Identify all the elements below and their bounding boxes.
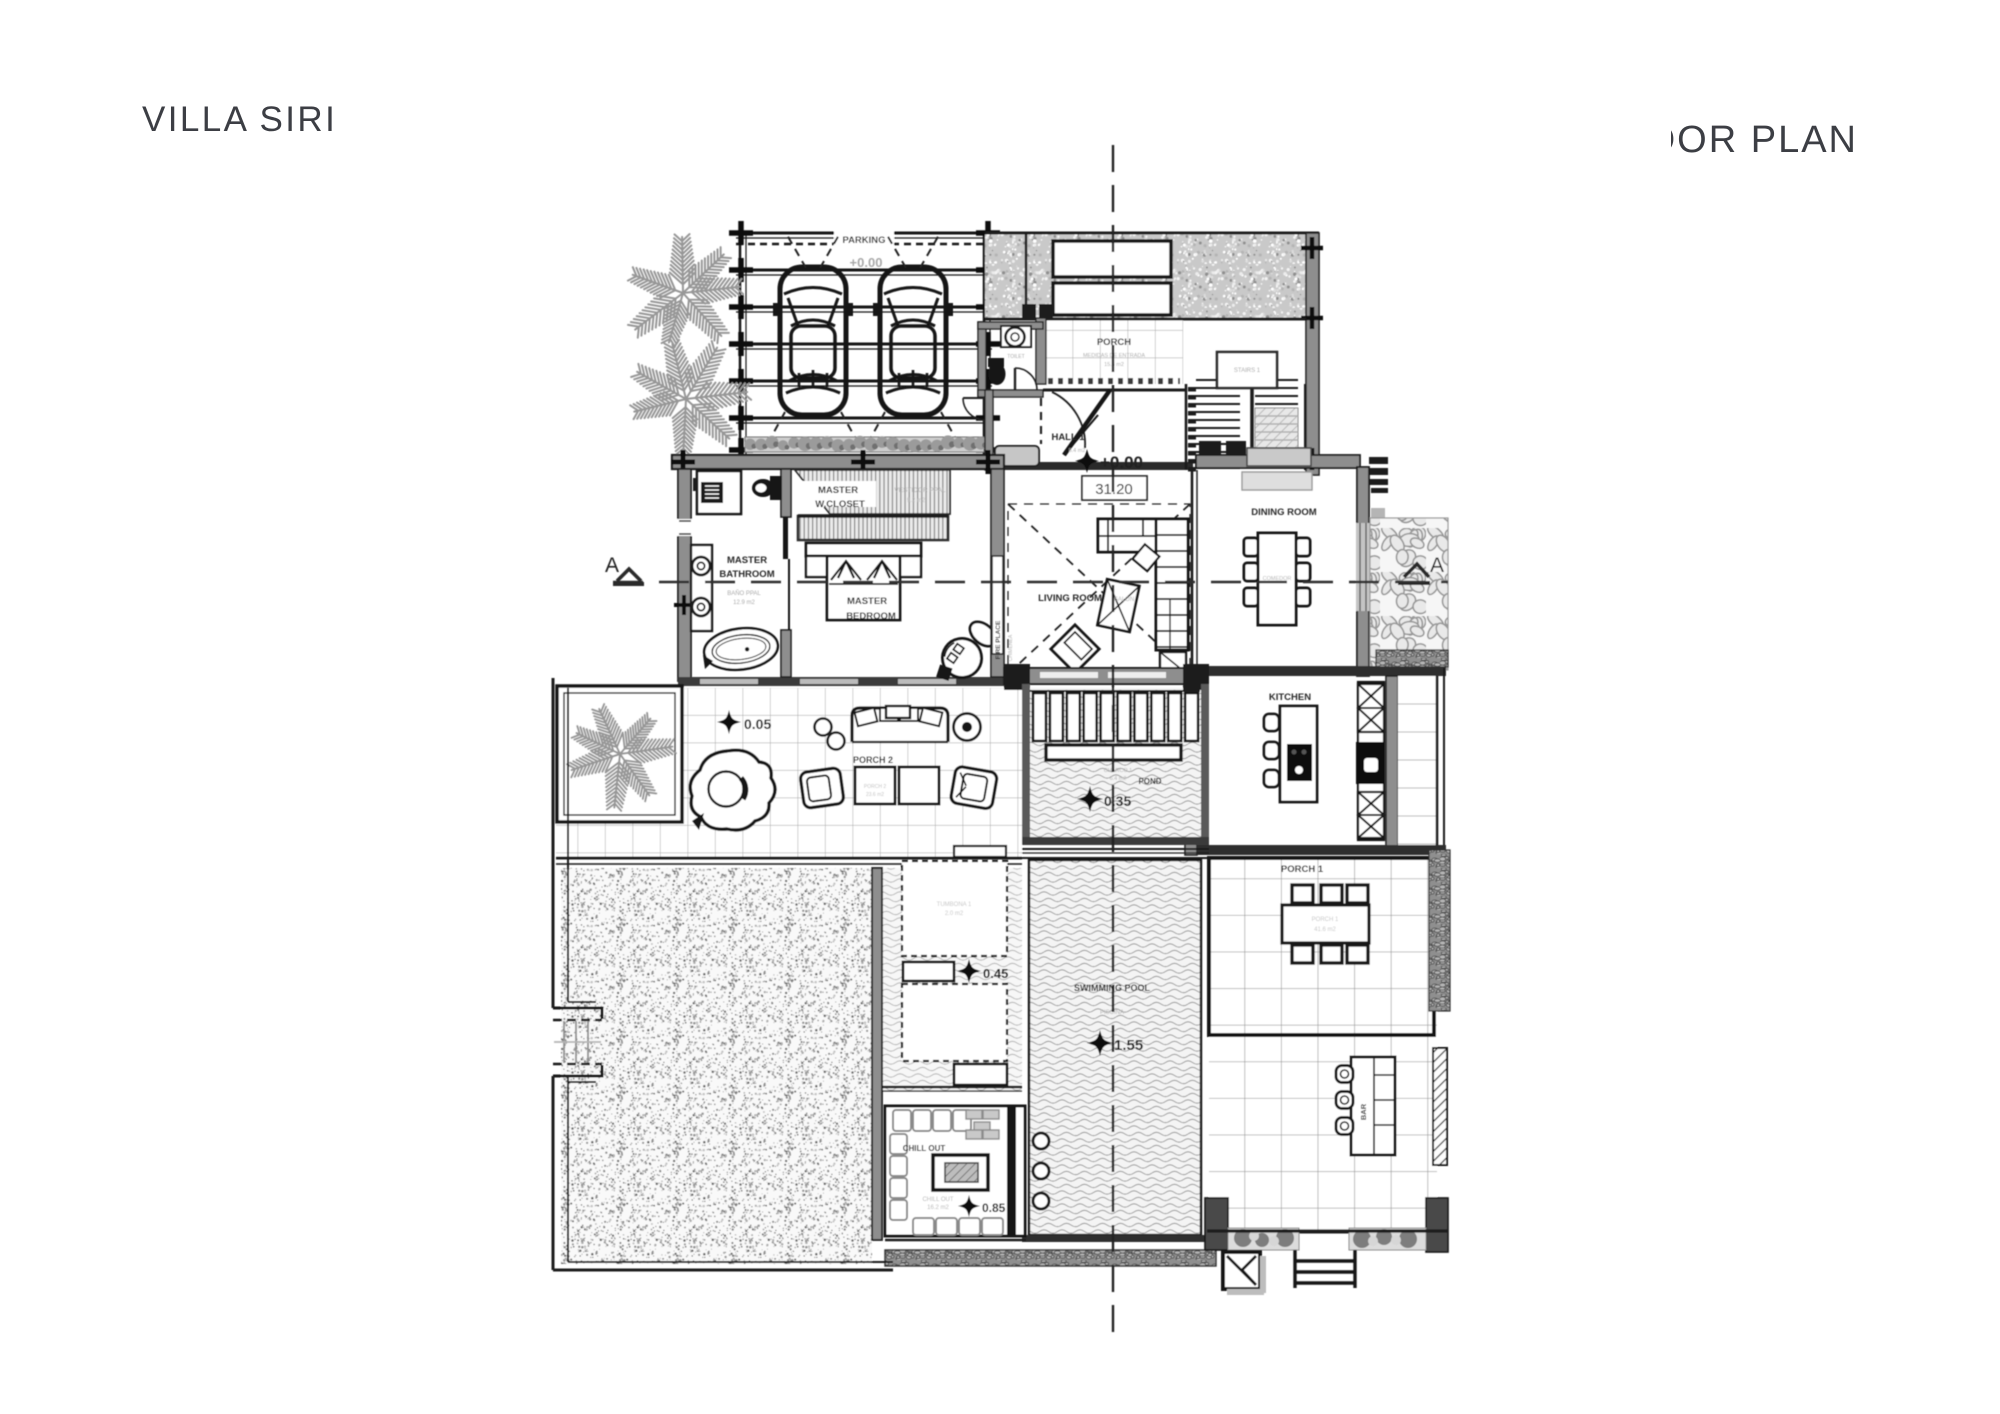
svg-text:DINING ROOM: DINING ROOM: [1251, 507, 1317, 518]
svg-text:TUMBONA 1: TUMBONA 1: [937, 902, 972, 908]
svg-text:TOILET: TOILET: [1007, 354, 1024, 360]
svg-text:12.9 m2: 12.9 m2: [733, 600, 755, 606]
svg-text:STAIRS 1: STAIRS 1: [1234, 368, 1261, 374]
svg-text:VESTIDOR PPAL: VESTIDOR PPAL: [894, 487, 946, 494]
svg-text:PORCH 2: PORCH 2: [864, 784, 886, 790]
svg-text:0.85: 0.85: [982, 1201, 1006, 1215]
svg-text:16.2 m2: 16.2 m2: [927, 1205, 949, 1211]
svg-text:41.6 m2: 41.6 m2: [1314, 927, 1336, 933]
svg-text:+0.00: +0.00: [850, 255, 883, 270]
svg-text:2.0 m2: 2.0 m2: [945, 911, 964, 917]
svg-text:FLOOR PLAN: FLOOR PLAN: [1597, 119, 1858, 161]
svg-text:MASTER: MASTER: [847, 596, 887, 607]
svg-text:POND: POND: [1138, 777, 1161, 786]
svg-text:W.CLOSET: W.CLOSET: [815, 499, 865, 510]
svg-text:A: A: [605, 554, 619, 577]
svg-text:CHILL OUT: CHILL OUT: [922, 1197, 953, 1203]
svg-text:A: A: [1430, 554, 1444, 577]
svg-text:CHARCO 1: CHARCO 1: [1104, 768, 1132, 774]
svg-text:6.4 m2: 6.4 m2: [1110, 776, 1127, 782]
svg-text:9.2 m2: 9.2 m2: [907, 498, 926, 504]
svg-text:1.55: 1.55: [1114, 1037, 1143, 1054]
svg-text:VILLA SIRI: VILLA SIRI: [142, 100, 337, 139]
svg-text:BAÑO PPAL: BAÑO PPAL: [727, 590, 761, 597]
svg-text:FIRE PLACE: FIRE PLACE: [995, 620, 1002, 659]
svg-text:BATHROOM: BATHROOM: [719, 569, 774, 580]
svg-text:SALON: SALON: [1114, 597, 1134, 603]
svg-text:PORCH 2: PORCH 2: [853, 755, 893, 765]
svg-text:23.6 m2: 23.6 m2: [866, 792, 884, 798]
svg-text:BAR: BAR: [1359, 1103, 1368, 1120]
svg-text:PORCH 1: PORCH 1: [1312, 917, 1339, 923]
svg-text:0.05: 0.05: [744, 716, 771, 732]
svg-text:BEDROOM: BEDROOM: [846, 611, 896, 622]
svg-text:+0.00: +0.00: [1100, 453, 1143, 472]
svg-text:MASTER: MASTER: [818, 485, 858, 496]
svg-text:KITCHEN: KITCHEN: [1269, 692, 1311, 703]
svg-text:0.45: 0.45: [983, 966, 1008, 981]
svg-text:PORCH 1: PORCH 1: [1281, 864, 1324, 875]
svg-text:MASTER: MASTER: [727, 555, 767, 566]
svg-text:CHILL OUT: CHILL OUT: [903, 1144, 946, 1153]
svg-text:CHIMENEA: CHIMENEA: [1008, 634, 1014, 661]
svg-text:PARKING: PARKING: [842, 235, 885, 246]
svg-text:HALL 1: HALL 1: [1051, 432, 1085, 443]
svg-text:0.35: 0.35: [1104, 793, 1131, 809]
svg-text:LIVING ROOM: LIVING ROOM: [1038, 593, 1102, 604]
svg-text:8.4 m2: 8.4 m2: [1069, 448, 1086, 454]
